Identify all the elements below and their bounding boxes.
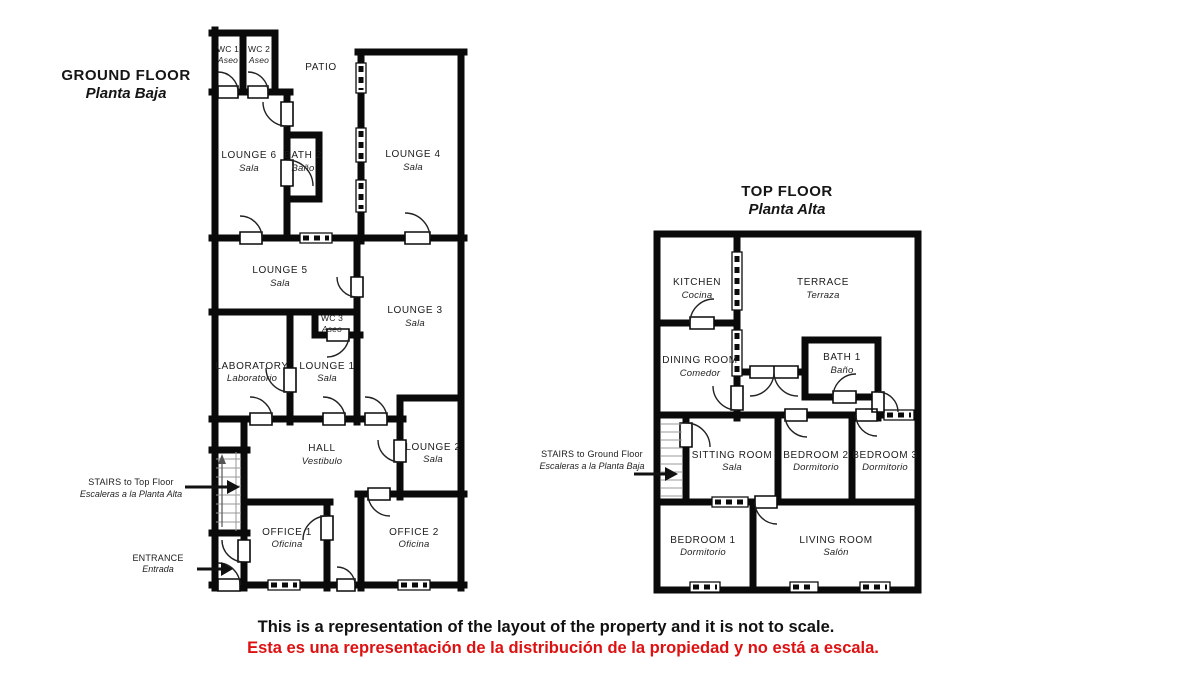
room-label-terrace: TERRACE bbox=[797, 277, 849, 288]
room-sublabel-lounge6: Sala bbox=[239, 163, 259, 174]
room-label-lounge4: LOUNGE 4 bbox=[385, 149, 440, 160]
room-sublabel-wc3: Aseo bbox=[321, 324, 342, 334]
room-sublabel-bath2: Baño bbox=[292, 163, 315, 174]
room-label-wc3: WC 3 bbox=[321, 313, 343, 323]
gf-entrance-annotation-es: Entrada bbox=[142, 564, 174, 574]
room-sublabel-office2: Oficina bbox=[399, 539, 430, 550]
tf-stairs-annotation: STAIRS to Ground Floor bbox=[541, 449, 643, 459]
tf-staircase bbox=[661, 424, 682, 496]
room-label-bedroom2: BEDROOM 2 bbox=[783, 450, 848, 461]
disclaimer: This is a representation of the layout o… bbox=[247, 618, 879, 657]
room-sublabel-sitting: Sala bbox=[722, 462, 742, 473]
room-sublabel-wc1: Aseo bbox=[217, 55, 238, 65]
disclaimer-en: This is a representation of the layout o… bbox=[258, 618, 835, 636]
ground-floor-subtitle: Planta Baja bbox=[86, 85, 167, 102]
tf-stairs-arrowhead bbox=[665, 467, 678, 481]
room-label-lounge1: LOUNGE 1 bbox=[299, 361, 354, 372]
room-label-lounge5: LOUNGE 5 bbox=[252, 265, 307, 276]
room-label-laboratory: LABORATORY bbox=[215, 361, 288, 372]
room-label-kitchen: KITCHEN bbox=[673, 277, 721, 288]
top-floor-plan: TOP FLOOR Planta Alta KITCHEN Cocina TER… bbox=[539, 183, 918, 592]
top-floor-subtitle: Planta Alta bbox=[749, 201, 826, 218]
patio-label: PATIO bbox=[305, 62, 337, 73]
disclaimer-es: Esta es una representación de la distrib… bbox=[247, 639, 879, 657]
room-label-bath1: BATH 1 bbox=[823, 352, 861, 363]
ground-floor-title: GROUND FLOOR bbox=[61, 67, 190, 84]
gf-stairs-annotation-es: Escaleras a la Planta Alta bbox=[80, 489, 182, 499]
room-label-lounge3: LOUNGE 3 bbox=[387, 305, 442, 316]
gf-stairs-annotation: STAIRS to Top Floor bbox=[88, 477, 174, 487]
room-sublabel-lounge4: Sala bbox=[403, 162, 423, 173]
room-sublabel-bedroom2: Dormitorio bbox=[793, 462, 839, 473]
room-label-bedroom3: BEDROOM 3 bbox=[852, 450, 917, 461]
room-label-wc1: WC 1 bbox=[217, 44, 239, 54]
room-sublabel-wc2: Aseo bbox=[248, 55, 269, 65]
room-label-lounge6: LOUNGE 6 bbox=[221, 150, 276, 161]
room-sublabel-dining: Comedor bbox=[680, 368, 721, 379]
tf-stair-steps bbox=[661, 424, 682, 496]
tf-stairs-annotation-es: Escaleras a la Planta Baja bbox=[539, 461, 644, 471]
room-label-wc2: WC 2 bbox=[248, 44, 270, 54]
room-label-living: LIVING ROOM bbox=[799, 535, 872, 546]
gf-stairs-arrowhead bbox=[227, 480, 240, 494]
ground-floor-plan: GROUND FLOOR Planta Baja WC 1 Aseo WC 2 … bbox=[61, 30, 464, 591]
room-label-sitting: SITTING ROOM bbox=[692, 450, 773, 461]
room-label-office1: OFFICE 1 bbox=[262, 527, 312, 538]
room-label-bedroom1: BEDROOM 1 bbox=[670, 535, 735, 546]
room-sublabel-lounge2: Sala bbox=[423, 454, 443, 465]
room-sublabel-laboratory: Laboratorio bbox=[227, 373, 277, 384]
room-sublabel-living: Salón bbox=[823, 547, 848, 558]
room-sublabel-bedroom1: Dormitorio bbox=[680, 547, 726, 558]
floorplan-page: GROUND FLOOR Planta Baja WC 1 Aseo WC 2 … bbox=[0, 0, 1200, 675]
room-label-bath2: BATH 2 bbox=[284, 150, 322, 161]
floorplan-svg: GROUND FLOOR Planta Baja WC 1 Aseo WC 2 … bbox=[0, 0, 1200, 675]
room-sublabel-bedroom3: Dormitorio bbox=[862, 462, 908, 473]
room-label-lounge2: LOUNGE 2 bbox=[405, 442, 460, 453]
room-sublabel-hall: Vestibulo bbox=[302, 456, 343, 467]
room-label-hall: HALL bbox=[308, 443, 335, 454]
top-floor-title: TOP FLOOR bbox=[741, 183, 832, 200]
room-sublabel-bath1: Baño bbox=[831, 365, 854, 376]
gf-window-panes bbox=[271, 66, 427, 585]
room-sublabel-office1: Oficina bbox=[272, 539, 303, 550]
room-label-dining: DINING ROOM bbox=[662, 355, 738, 366]
gf-entrance-annotation: ENTRANCE bbox=[132, 553, 183, 563]
room-sublabel-kitchen: Cocina bbox=[682, 290, 713, 301]
room-sublabel-terrace: Terraza bbox=[806, 290, 839, 301]
room-sublabel-lounge3: Sala bbox=[405, 318, 425, 329]
room-label-office2: OFFICE 2 bbox=[389, 527, 439, 538]
room-sublabel-lounge1: Sala bbox=[317, 373, 337, 384]
room-sublabel-lounge5: Sala bbox=[270, 278, 290, 289]
